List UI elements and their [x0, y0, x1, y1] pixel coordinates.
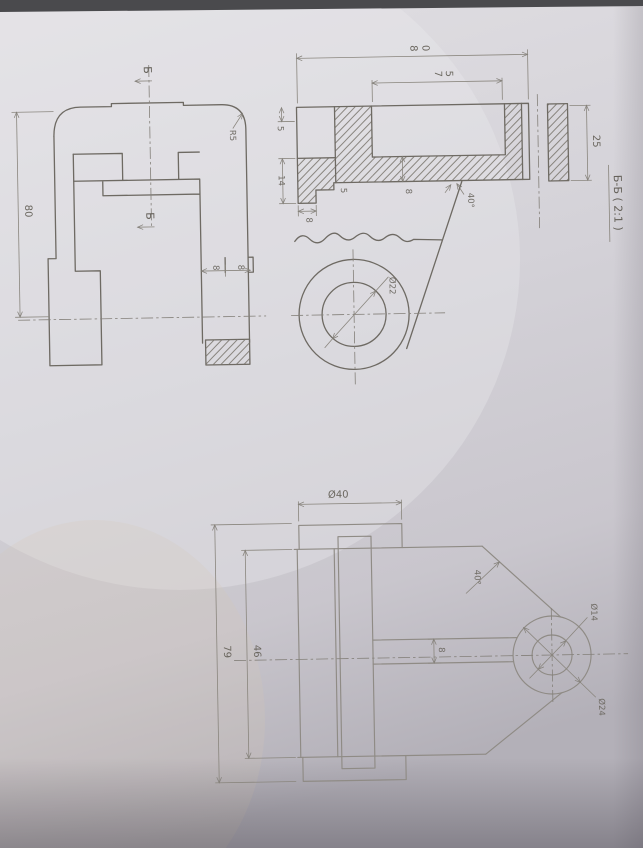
side-step-left-label: 8 [210, 265, 220, 271]
photo-of-technical-drawing: 80 8 8 R5 Б Б [0, 0, 643, 848]
section-leg-label: 14 [276, 175, 286, 186]
bottom-shadow [0, 758, 643, 848]
side-step-right-label: 8 [235, 265, 245, 271]
side-radius-label: R5 [227, 130, 237, 142]
boss-diameter-label: Ø40 [328, 489, 349, 501]
section-open-digit1: 7 [432, 71, 443, 78]
right-edge-shadow [613, 0, 643, 848]
section-title: Б-Б ( 2:1 ) [611, 175, 625, 231]
section-mark-mid: Б [143, 212, 156, 220]
inner-height-label: 46 [251, 645, 262, 658]
side-height-label: 80 [22, 205, 33, 218]
web-thickness-label: 8 [436, 647, 446, 653]
section-width-digit1: 8 [407, 45, 418, 52]
section-mark-top: Б [141, 66, 154, 74]
section-width-digit2: 0 [419, 45, 430, 52]
section-wall-label: 8 [403, 189, 413, 195]
hole-diameter-label: Ø14 [588, 603, 599, 621]
section-chamfer-label: 40° [465, 193, 475, 208]
overall-height-label: 79 [221, 645, 232, 658]
section-flange-label: 5 [275, 126, 285, 132]
section-leg-width-label: 8 [303, 217, 313, 223]
drawing-canvas: 80 8 8 R5 Б Б [0, 0, 643, 848]
section-open-digit2: 5 [443, 70, 454, 77]
eye-diameter-label: Ø24 [596, 698, 607, 716]
bore-diameter-label: Ø22 [386, 277, 397, 295]
section-step-label: 5 [338, 188, 348, 194]
side-view-hatch-block [206, 339, 250, 365]
angle-label: 40° [472, 570, 482, 585]
section-right-label: 25 [590, 135, 601, 148]
